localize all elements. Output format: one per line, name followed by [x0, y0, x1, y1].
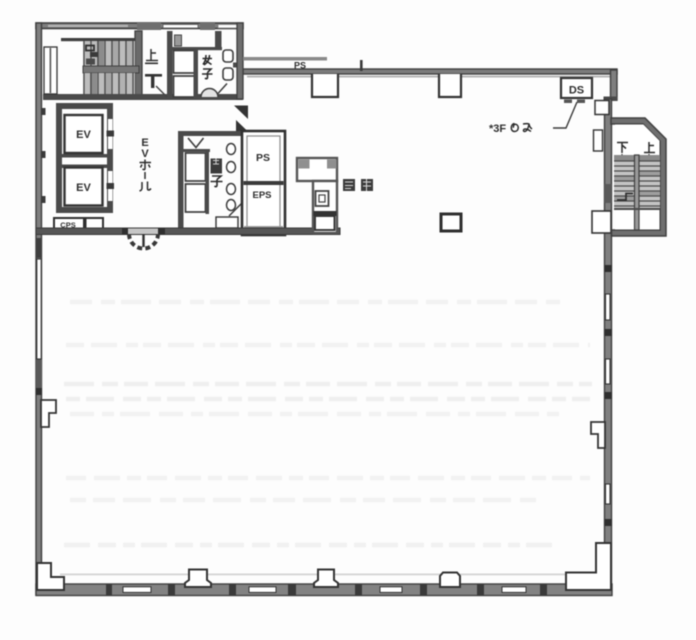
svg-text:*3F: *3F — [489, 123, 506, 135]
svg-text:EV: EV — [76, 182, 91, 194]
svg-text:PS: PS — [256, 152, 270, 164]
svg-text:DS: DS — [569, 85, 584, 97]
svg-text:PS: PS — [294, 61, 306, 71]
svg-text:EPS: EPS — [252, 190, 271, 201]
svg-text:EV: EV — [76, 129, 91, 141]
svg-text:V: V — [141, 148, 149, 160]
